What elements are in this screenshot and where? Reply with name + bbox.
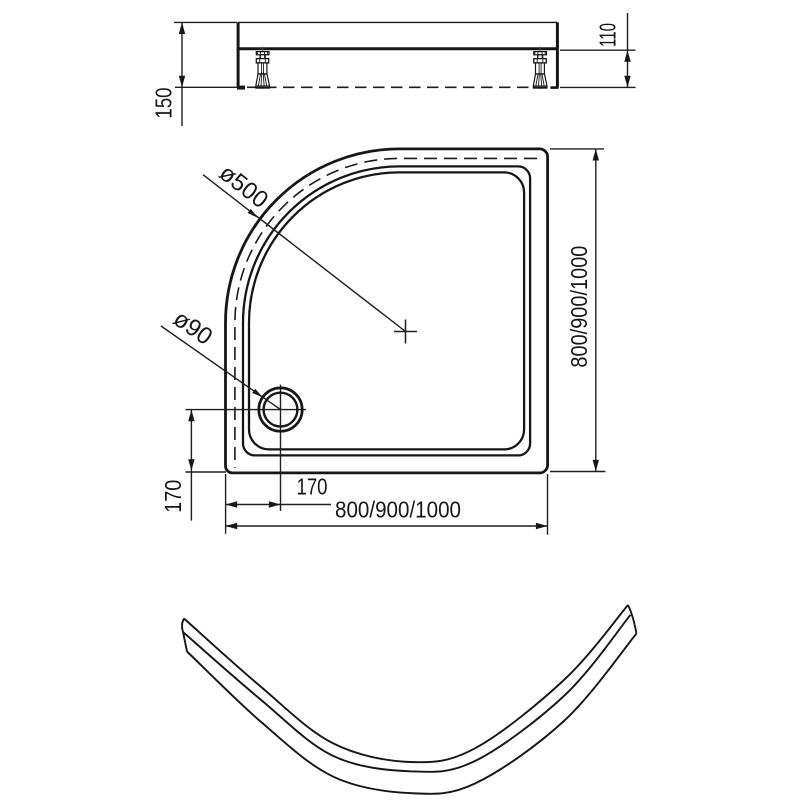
svg-text:150: 150 — [151, 88, 177, 119]
svg-text:170: 170 — [297, 473, 328, 499]
svg-text:800/900/1000: 800/900/1000 — [335, 497, 461, 523]
svg-text:800/900/1000: 800/900/1000 — [566, 246, 592, 368]
svg-text:110: 110 — [595, 23, 621, 47]
svg-text:170: 170 — [160, 480, 186, 513]
